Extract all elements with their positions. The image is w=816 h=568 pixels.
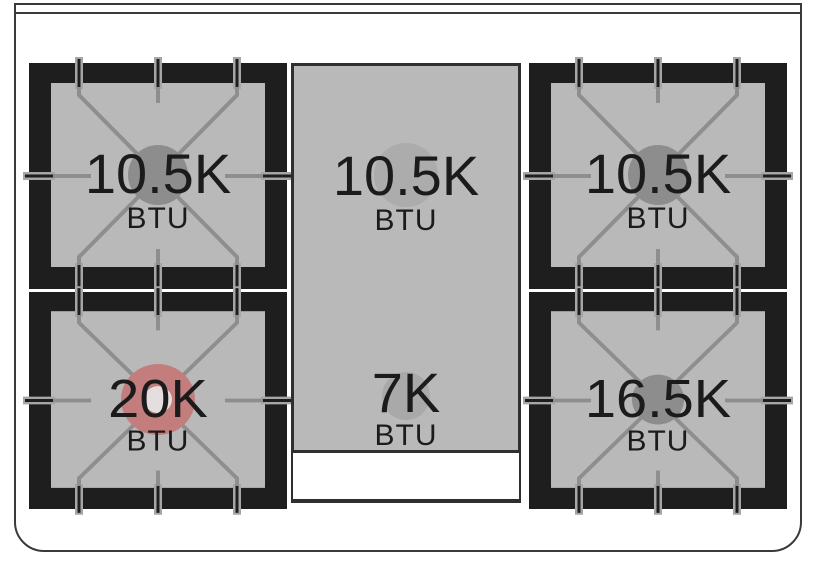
burner-btu-unit: BTU — [375, 204, 438, 237]
burner-btu-value: 10.5K — [85, 142, 231, 205]
griddle-drip-tray — [291, 453, 521, 503]
burner-btu-unit: BTU — [627, 425, 690, 457]
cooktop-surface: 10.5K BTU 20K BTU 10.5K BTU 7K BTU — [29, 63, 787, 509]
burner-btu-value: 10.5K — [333, 144, 479, 207]
burner-btu-unit: BTU — [127, 202, 190, 235]
burner-btu-unit: BTU — [127, 425, 190, 457]
burner-grate-top-left: 10.5K BTU — [29, 63, 287, 289]
burner-btu-value: 20K — [108, 368, 208, 429]
burner-btu-value: 10.5K — [585, 142, 731, 205]
burner-grate-top-right: 10.5K BTU — [529, 63, 787, 289]
burner-btu-unit: BTU — [375, 419, 438, 452]
burner-btu-unit: BTU — [627, 202, 690, 235]
burner-grate-bottom-right: 16.5K BTU — [529, 292, 787, 509]
cooktop-diagram: 10.5K BTU 20K BTU 10.5K BTU 7K BTU — [0, 0, 816, 568]
burner-btu-value: 7K — [372, 361, 441, 424]
burner-btu-value: 16.5K — [585, 368, 731, 429]
burner-grate-bottom-left: 20K BTU — [29, 292, 287, 509]
griddle-plate: 10.5K BTU 7K BTU — [291, 63, 521, 453]
